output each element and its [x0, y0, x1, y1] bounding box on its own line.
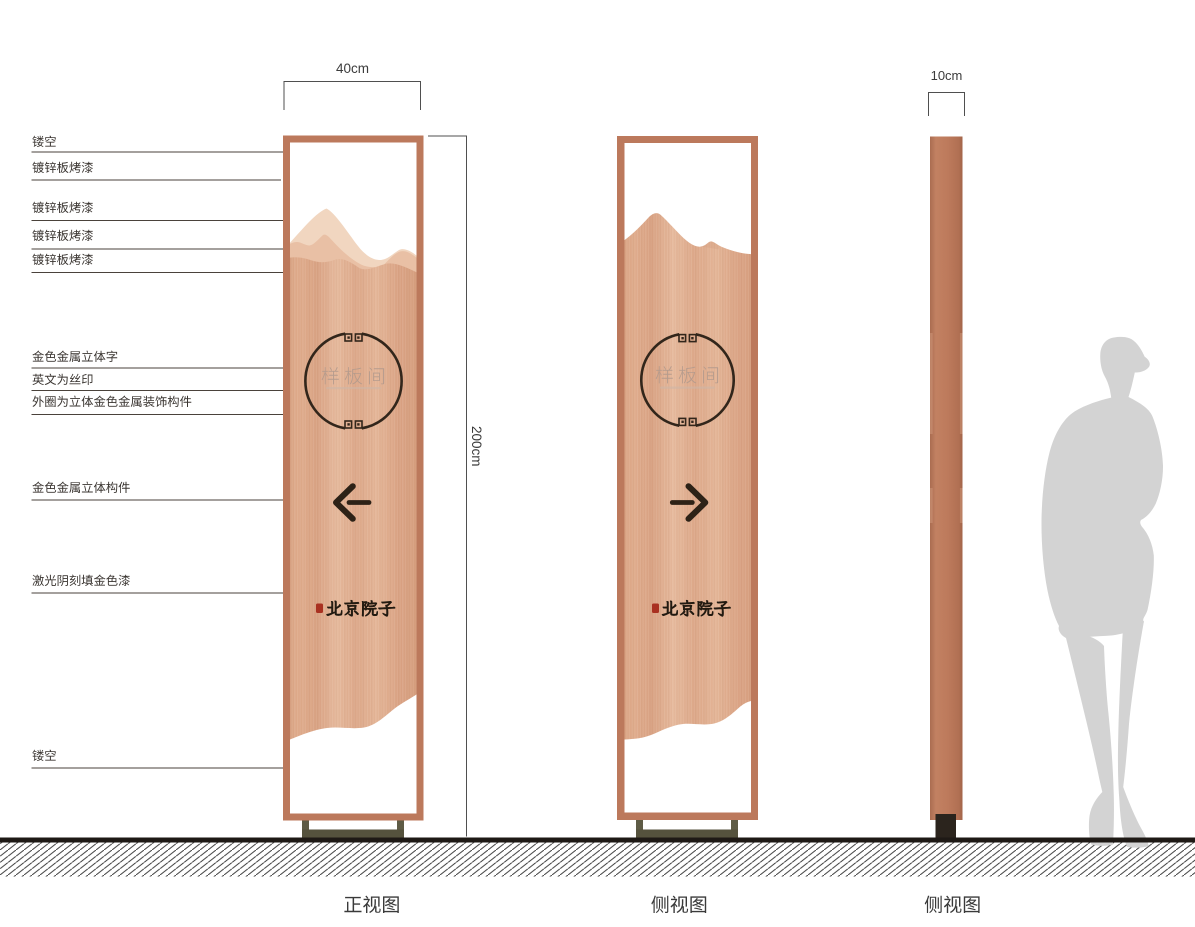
svg-text:200cm: 200cm	[469, 426, 484, 467]
svg-text:10cm: 10cm	[931, 68, 963, 83]
svg-text:40cm: 40cm	[336, 61, 369, 76]
